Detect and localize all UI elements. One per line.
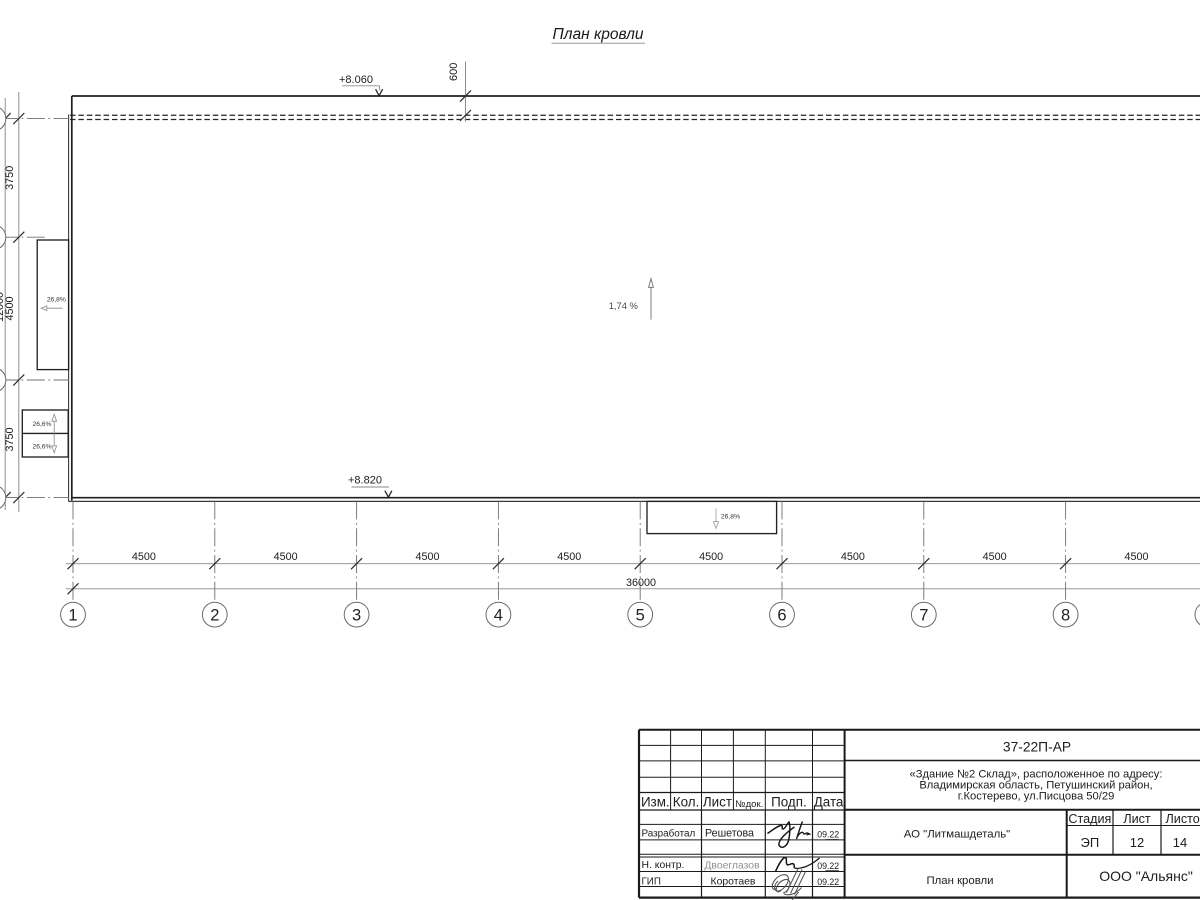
svg-text:ЭП: ЭП (1081, 835, 1100, 850)
svg-text:3750: 3750 (4, 166, 16, 190)
svg-text:4500: 4500 (274, 551, 298, 563)
svg-text:АО "Литмашдеталь": АО "Литмашдеталь" (904, 829, 1010, 841)
svg-text:14: 14 (1173, 835, 1187, 850)
svg-text:26,6%: 26,6% (33, 444, 52, 451)
svg-text:План кровли: План кровли (926, 875, 993, 887)
svg-text:Решетова: Решетова (705, 828, 754, 840)
svg-text:Коротаев: Коротаев (711, 876, 756, 887)
svg-text:+8.820: +8.820 (348, 475, 382, 487)
svg-text:4: 4 (494, 606, 503, 624)
svg-text:26,8%: 26,8% (47, 297, 66, 304)
svg-text:09.22: 09.22 (817, 830, 839, 840)
svg-text:3750: 3750 (4, 427, 16, 451)
svg-text:4500: 4500 (415, 551, 439, 563)
svg-text:Кол.: Кол. (673, 795, 700, 810)
svg-text:Дата: Дата (814, 795, 844, 810)
svg-text:4500: 4500 (841, 551, 865, 563)
svg-text:4500: 4500 (557, 551, 581, 563)
svg-text:1: 1 (68, 606, 77, 624)
svg-text:26,8%: 26,8% (721, 513, 740, 520)
svg-text:12000: 12000 (0, 292, 6, 322)
svg-text:1,74 %: 1,74 % (609, 300, 638, 311)
svg-text:4500: 4500 (983, 551, 1007, 563)
svg-text:5: 5 (636, 606, 645, 624)
svg-text:09.22: 09.22 (817, 861, 839, 871)
svg-text:7: 7 (919, 606, 928, 624)
svg-text:37-22П-АР: 37-22П-АР (1003, 740, 1071, 755)
svg-text:Н. контр.: Н. контр. (642, 860, 685, 871)
svg-text:Стадия: Стадия (1068, 812, 1111, 826)
svg-text:4500: 4500 (132, 551, 156, 563)
svg-text:Лист: Лист (703, 795, 732, 810)
svg-text:600: 600 (448, 63, 460, 81)
svg-text:Подп.: Подп. (771, 795, 807, 810)
svg-text:2: 2 (210, 606, 219, 624)
svg-text:36000: 36000 (626, 577, 656, 589)
svg-text:Лист: Лист (1123, 812, 1151, 826)
svg-text:3: 3 (352, 606, 361, 624)
svg-text:09.22: 09.22 (817, 877, 839, 887)
svg-text:26,6%: 26,6% (33, 421, 52, 428)
svg-text:Двоеглазов: Двоеглазов (704, 861, 760, 872)
svg-text:6: 6 (777, 606, 786, 624)
svg-text:Изм.: Изм. (641, 795, 670, 810)
svg-text:ООО "Альянс": ООО "Альянс" (1099, 868, 1193, 884)
svg-text:План кровли: План кровли (553, 26, 644, 43)
svg-text:№док.: №док. (735, 799, 763, 810)
svg-text:+8.060: +8.060 (339, 74, 373, 86)
svg-text:Листов: Листов (1166, 812, 1200, 826)
svg-text:Разработал: Разработал (642, 828, 696, 839)
svg-text:8: 8 (1061, 606, 1070, 624)
svg-text:г.Костерево, ул.Писцова 50/29: г.Костерево, ул.Писцова 50/29 (958, 791, 1115, 803)
svg-text:12: 12 (1130, 835, 1144, 850)
svg-text:4500: 4500 (699, 551, 723, 563)
svg-text:4500: 4500 (1124, 551, 1148, 563)
svg-text:ГИП: ГИП (642, 876, 661, 887)
